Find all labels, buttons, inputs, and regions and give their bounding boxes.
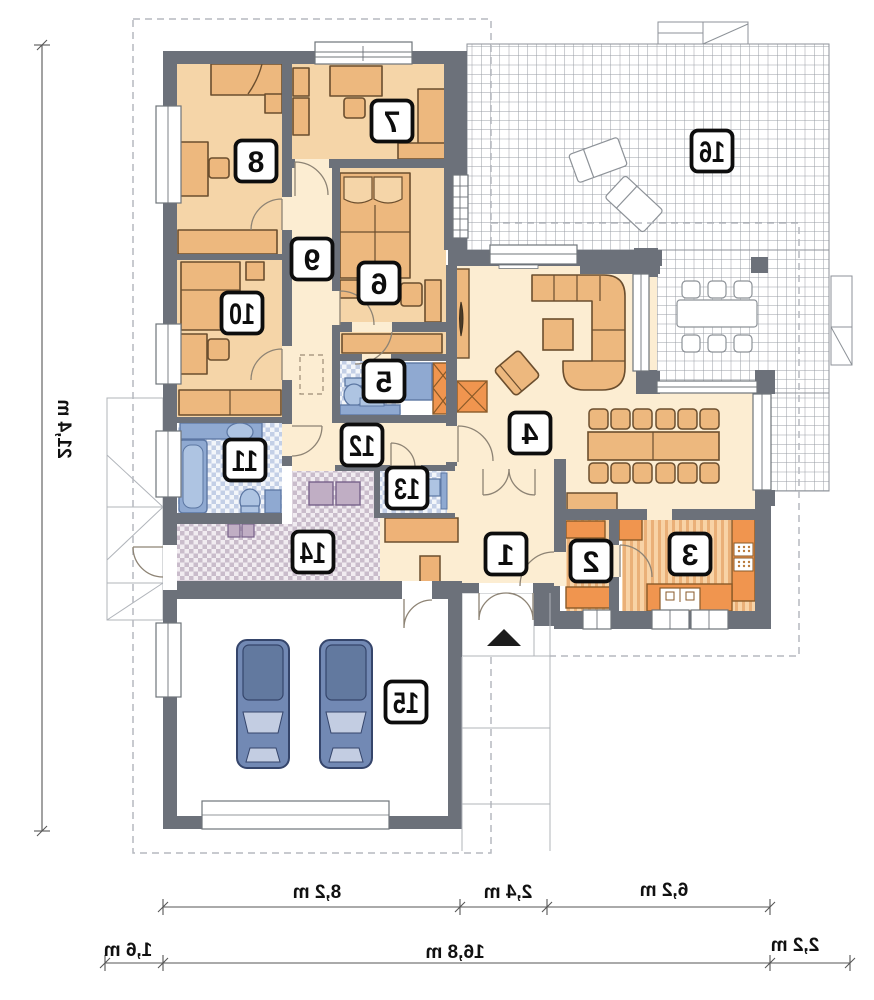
svg-text:8: 8 [248,146,265,179]
svg-text:2,4 m: 2,4 m [484,882,533,903]
svg-text:9: 9 [304,244,321,277]
svg-text:16,8 m: 16,8 m [425,942,484,963]
svg-text:7: 7 [384,106,401,139]
svg-text:21,4 m: 21,4 m [53,399,74,458]
svg-text:8,2 m: 8,2 m [293,882,342,903]
svg-text:15: 15 [393,687,419,720]
svg-text:11: 11 [232,445,258,478]
svg-text:6: 6 [371,268,388,301]
svg-text:1: 1 [498,539,515,572]
svg-text:12: 12 [349,430,375,463]
svg-text:5: 5 [376,366,393,399]
svg-text:6,2 m: 6,2 m [640,880,689,901]
svg-text:4: 4 [521,418,538,451]
svg-text:2: 2 [583,546,600,579]
svg-text:2,2 m: 2,2 m [771,935,820,956]
svg-text:1,6 m: 1,6 m [104,940,153,961]
svg-text:14: 14 [300,537,326,570]
svg-text:3: 3 [682,539,699,572]
svg-text:13: 13 [394,473,420,506]
svg-text:16: 16 [699,136,725,169]
svg-text:10: 10 [229,298,255,331]
